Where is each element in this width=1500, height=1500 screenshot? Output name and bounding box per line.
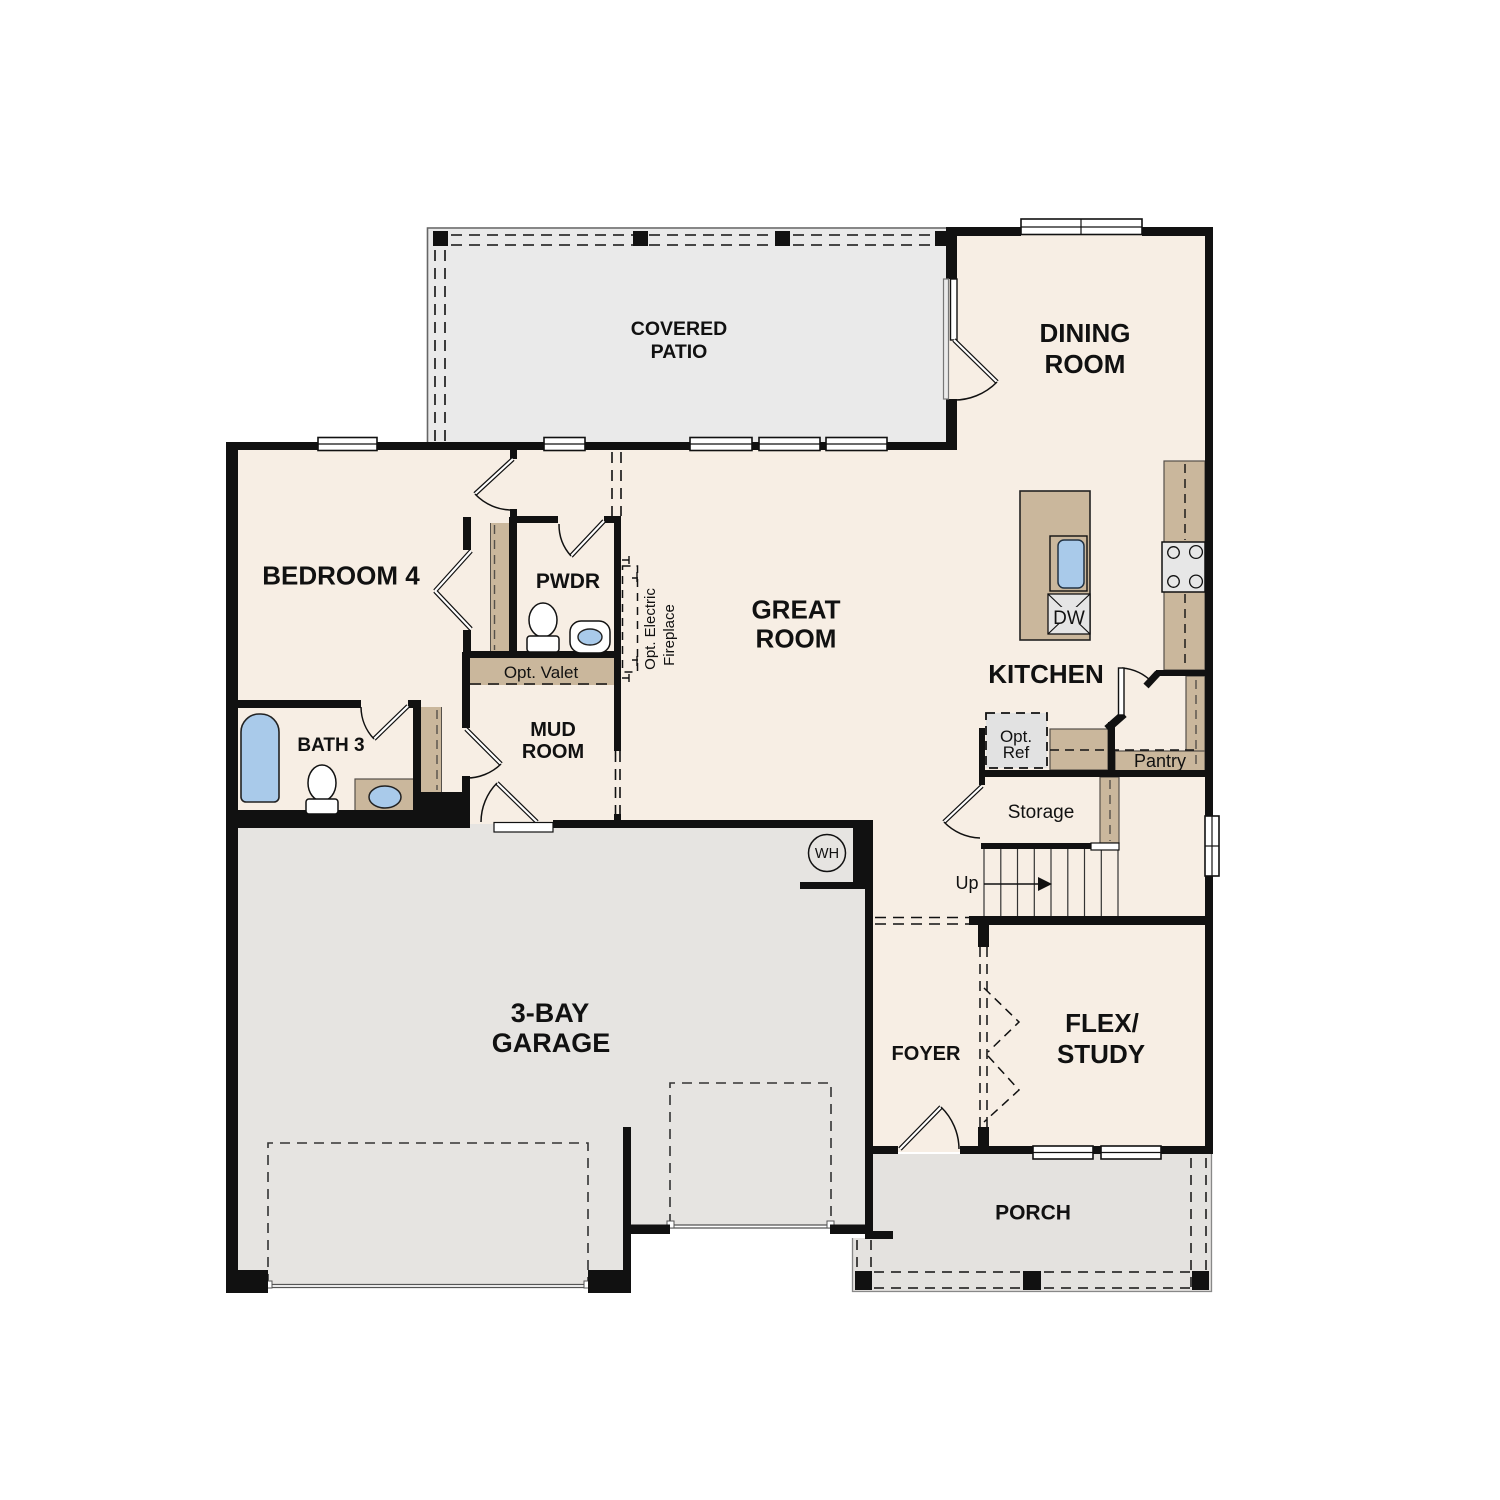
svg-text:ROOM: ROOM (756, 624, 837, 654)
svg-text:Pantry: Pantry (1134, 751, 1186, 771)
svg-text:PWDR: PWDR (536, 570, 600, 593)
svg-text:COVERED: COVERED (631, 318, 727, 340)
svg-text:3-BAY: 3-BAY (511, 998, 590, 1028)
svg-text:FLEX/: FLEX/ (1065, 1008, 1139, 1038)
svg-text:FOYER: FOYER (892, 1043, 961, 1065)
svg-text:GREAT: GREAT (751, 595, 840, 625)
svg-text:Fireplace: Fireplace (661, 604, 678, 666)
svg-text:ROOM: ROOM (522, 741, 584, 763)
svg-text:WH: WH (815, 846, 839, 862)
svg-text:ROOM: ROOM (1045, 349, 1126, 379)
svg-text:PORCH: PORCH (995, 1202, 1071, 1225)
svg-text:DINING: DINING (1040, 318, 1131, 348)
svg-text:BATH 3: BATH 3 (297, 735, 364, 756)
svg-text:Opt. Electric: Opt. Electric (642, 588, 659, 670)
svg-text:PATIO: PATIO (651, 341, 708, 363)
svg-text:BEDROOM 4: BEDROOM 4 (262, 561, 420, 591)
svg-text:Opt. Valet: Opt. Valet (504, 663, 579, 682)
svg-text:KITCHEN: KITCHEN (988, 659, 1104, 689)
svg-text:GARAGE: GARAGE (492, 1028, 611, 1058)
svg-text:Up: Up (955, 873, 978, 893)
svg-text:DW: DW (1053, 608, 1085, 629)
svg-text:STUDY: STUDY (1057, 1039, 1145, 1069)
svg-text:MUD: MUD (530, 719, 576, 741)
svg-text:Storage: Storage (1008, 802, 1075, 823)
svg-text:Ref: Ref (1003, 743, 1030, 762)
